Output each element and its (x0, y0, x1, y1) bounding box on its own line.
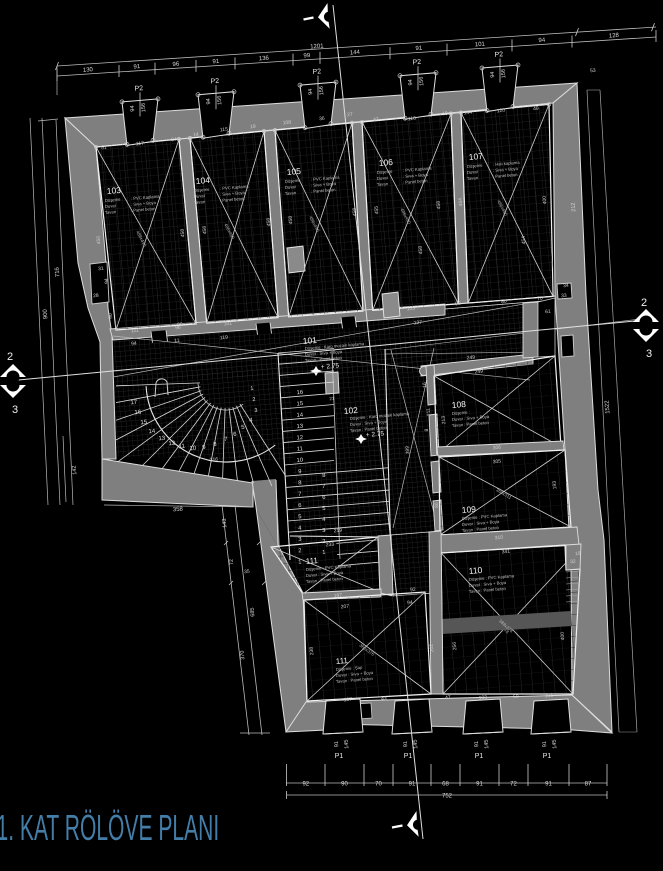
svg-text:Tavan: Tavan (377, 181, 389, 187)
svg-text:103: 103 (106, 185, 121, 196)
svg-text:119: 119 (220, 335, 229, 342)
svg-text:1522: 1522 (604, 400, 611, 414)
svg-text:94: 94 (407, 600, 413, 606)
svg-text:7: 7 (298, 492, 302, 498)
svg-text:P1: P1 (404, 753, 413, 760)
svg-text:142: 142 (72, 465, 79, 475)
svg-text:5: 5 (298, 514, 302, 520)
svg-text:207: 207 (341, 604, 350, 611)
svg-text:Duvar: Duvar (467, 169, 479, 175)
svg-text:111: 111 (335, 656, 348, 666)
svg-text:108: 108 (451, 399, 466, 410)
svg-text:458: 458 (436, 200, 443, 209)
svg-text:19: 19 (442, 111, 448, 117)
svg-text:91: 91 (542, 741, 548, 748)
svg-text:6: 6 (298, 503, 302, 509)
svg-text:458: 458 (180, 228, 187, 237)
svg-text:106: 106 (378, 157, 393, 168)
svg-text:72: 72 (229, 559, 235, 566)
svg-text:49: 49 (533, 106, 539, 112)
svg-text:70: 70 (375, 782, 382, 788)
svg-text:11: 11 (179, 444, 186, 451)
svg-text:P1: P1 (475, 753, 484, 760)
svg-text:13: 13 (296, 424, 303, 431)
svg-text:2: 2 (641, 297, 647, 309)
svg-text:156: 156 (501, 69, 508, 79)
svg-text:3: 3 (254, 408, 258, 414)
svg-text:127: 127 (414, 320, 423, 327)
svg-text:91: 91 (403, 741, 409, 748)
svg-text:11: 11 (297, 446, 304, 452)
svg-text:90: 90 (341, 782, 348, 788)
svg-text:15: 15 (296, 401, 303, 408)
svg-text:70: 70 (537, 296, 543, 302)
svg-text:10: 10 (296, 458, 303, 465)
svg-text:7: 7 (322, 484, 326, 490)
svg-text:31: 31 (98, 266, 104, 272)
svg-text:92: 92 (302, 782, 309, 788)
svg-text:16: 16 (134, 410, 142, 417)
svg-text:400: 400 (560, 631, 567, 640)
svg-text:3: 3 (322, 528, 326, 534)
svg-text:87: 87 (585, 782, 592, 788)
svg-text:3: 3 (298, 537, 302, 543)
svg-text:19: 19 (250, 124, 256, 130)
svg-text:15: 15 (140, 420, 148, 427)
svg-text:91: 91 (476, 782, 483, 788)
svg-text:12: 12 (168, 441, 176, 448)
svg-text:94: 94 (538, 38, 546, 45)
svg-text:19: 19 (575, 551, 581, 557)
svg-text:94: 94 (308, 88, 314, 95)
svg-text:91: 91 (409, 782, 416, 788)
svg-text:306: 306 (493, 445, 502, 452)
svg-text:94: 94 (104, 278, 110, 284)
svg-text:34: 34 (171, 137, 177, 143)
svg-text:91: 91 (474, 741, 480, 748)
svg-text:16: 16 (296, 390, 303, 397)
svg-text:96: 96 (172, 61, 180, 68)
svg-text:143: 143 (222, 518, 229, 528)
svg-text:92: 92 (410, 587, 416, 593)
svg-text:219: 219 (334, 528, 343, 535)
svg-text:8: 8 (322, 473, 326, 479)
svg-text:249: 249 (467, 355, 476, 362)
svg-text:91: 91 (545, 782, 552, 788)
svg-text:91: 91 (212, 59, 220, 66)
svg-text:130: 130 (83, 67, 94, 74)
svg-text:3: 3 (646, 348, 652, 360)
svg-text:50: 50 (513, 694, 519, 700)
svg-text:13: 13 (158, 436, 166, 443)
svg-text:P2: P2 (494, 51, 503, 59)
svg-text:Duvar: Duvar (377, 175, 389, 181)
svg-text:101: 101 (224, 321, 233, 328)
svg-text:14: 14 (193, 132, 199, 138)
svg-text:33: 33 (561, 293, 567, 299)
svg-text:110: 110 (468, 565, 483, 576)
svg-text:Tavan: Tavan (194, 199, 206, 205)
svg-text:455: 455 (374, 205, 381, 214)
svg-text:32: 32 (570, 559, 576, 565)
svg-text:90: 90 (108, 313, 114, 319)
svg-text:P2: P2 (210, 78, 219, 86)
svg-text:156: 156 (319, 86, 326, 96)
svg-text:101: 101 (475, 42, 486, 49)
svg-text:6: 6 (322, 495, 326, 501)
svg-text:145: 145 (413, 739, 420, 749)
svg-text:211: 211 (426, 408, 433, 417)
svg-text:94: 94 (131, 341, 137, 347)
svg-text:16: 16 (422, 382, 428, 388)
svg-text:117: 117 (136, 141, 145, 148)
svg-text:47: 47 (373, 117, 379, 123)
svg-text:136: 136 (259, 56, 270, 63)
svg-text:8: 8 (298, 480, 302, 486)
svg-text:3: 3 (12, 404, 18, 416)
svg-text:144: 144 (464, 110, 473, 117)
svg-text:111: 111 (305, 556, 318, 566)
svg-text:94: 94 (130, 105, 136, 112)
svg-text:145: 145 (552, 739, 559, 749)
svg-text:685: 685 (250, 607, 257, 617)
svg-text:1. KAT RÖLÖVE PLANI: 1. KAT RÖLÖVE PLANI (0, 808, 219, 848)
svg-text:Duvar: Duvar (285, 184, 297, 190)
svg-text:316: 316 (210, 457, 219, 464)
svg-text:17: 17 (130, 400, 138, 407)
svg-text:104: 104 (195, 175, 210, 186)
svg-text:80: 80 (501, 299, 507, 305)
svg-text:28: 28 (93, 293, 99, 299)
svg-text:103: 103 (479, 695, 488, 702)
svg-text:91: 91 (133, 64, 141, 71)
svg-text:716: 716 (55, 266, 62, 277)
svg-text:212: 212 (571, 202, 578, 212)
svg-text:Tavan: Tavan (105, 209, 117, 215)
svg-text:341: 341 (502, 549, 511, 556)
svg-text:Tavan: Tavan (285, 190, 297, 196)
svg-text:2: 2 (7, 351, 13, 363)
svg-text:456: 456 (96, 235, 103, 244)
svg-text:900: 900 (43, 308, 50, 319)
svg-text:103: 103 (545, 693, 554, 700)
svg-text:99: 99 (303, 53, 311, 60)
svg-text:94: 94 (408, 79, 414, 86)
svg-text:94: 94 (206, 98, 212, 105)
svg-text:1: 1 (250, 386, 254, 392)
svg-text:108: 108 (283, 120, 292, 127)
svg-text:458: 458 (266, 217, 273, 226)
svg-text:111: 111 (131, 328, 139, 335)
svg-text:P2: P2 (412, 59, 421, 67)
svg-text:Tavan: Tavan (467, 175, 479, 181)
svg-text:144: 144 (350, 50, 361, 57)
svg-text:107: 107 (344, 697, 353, 704)
svg-text:238: 238 (309, 646, 316, 655)
svg-text:5: 5 (322, 506, 326, 512)
svg-text:213: 213 (441, 415, 448, 424)
svg-text:72: 72 (510, 782, 517, 788)
svg-text:202: 202 (429, 643, 436, 652)
svg-text:P1: P1 (335, 753, 344, 760)
svg-text:11: 11 (174, 338, 180, 344)
svg-text:145: 145 (344, 739, 351, 749)
svg-text:94: 94 (490, 71, 496, 78)
svg-text:90: 90 (177, 322, 183, 328)
svg-text:156: 156 (419, 76, 426, 86)
svg-text:36: 36 (319, 116, 325, 122)
svg-text:91: 91 (334, 741, 340, 748)
svg-text:752: 752 (442, 794, 453, 800)
svg-text:43: 43 (381, 696, 387, 702)
svg-text:91: 91 (415, 46, 423, 53)
svg-text:P1: P1 (543, 753, 552, 760)
svg-text:193: 193 (552, 480, 559, 489)
svg-text:458: 458 (202, 225, 209, 234)
svg-text:27: 27 (347, 112, 353, 118)
svg-text:128: 128 (609, 33, 620, 40)
svg-text:310: 310 (495, 535, 504, 542)
svg-text:156: 156 (217, 95, 224, 105)
svg-text:68: 68 (442, 782, 449, 788)
svg-text:14: 14 (148, 429, 156, 436)
svg-text:464: 464 (458, 197, 465, 206)
svg-text:90: 90 (455, 301, 461, 307)
svg-text:105: 105 (407, 306, 416, 313)
svg-text:358: 358 (173, 507, 184, 514)
svg-text:102: 102 (343, 405, 358, 416)
svg-text:10: 10 (189, 446, 197, 453)
svg-text:35: 35 (244, 569, 250, 575)
svg-text:86: 86 (434, 502, 440, 508)
svg-text:399: 399 (405, 445, 412, 454)
svg-text:115: 115 (220, 127, 229, 134)
svg-text:Duvar: Duvar (194, 193, 206, 199)
svg-text:105: 105 (286, 166, 301, 177)
svg-text:454: 454 (521, 235, 528, 244)
svg-text:P2: P2 (134, 85, 143, 93)
svg-text:305: 305 (493, 459, 502, 466)
svg-text:107: 107 (468, 151, 483, 162)
svg-text:233: 233 (326, 542, 335, 549)
svg-text:51: 51 (101, 145, 107, 151)
svg-text:Duvar: Duvar (105, 203, 117, 209)
svg-text:370: 370 (240, 650, 247, 660)
svg-text:12: 12 (296, 435, 303, 442)
svg-text:9: 9 (298, 469, 302, 475)
svg-text:156: 156 (141, 103, 148, 113)
svg-text:256: 256 (452, 641, 459, 650)
svg-text:109: 109 (461, 504, 476, 515)
svg-text:458: 458 (418, 245, 425, 254)
svg-text:P2: P2 (312, 68, 321, 76)
svg-text:145: 145 (484, 739, 491, 749)
svg-text:61: 61 (545, 309, 551, 315)
svg-text:47: 47 (445, 695, 451, 701)
svg-text:1201: 1201 (310, 43, 324, 50)
svg-text:34: 34 (563, 283, 569, 289)
svg-text:120: 120 (497, 108, 506, 115)
svg-text:53: 53 (590, 68, 596, 74)
svg-text:116: 116 (408, 116, 417, 123)
svg-text:400: 400 (542, 195, 549, 204)
svg-text:2: 2 (252, 397, 256, 403)
svg-text:197: 197 (334, 593, 343, 600)
svg-text:249: 249 (475, 369, 484, 376)
svg-text:458: 458 (288, 215, 295, 224)
